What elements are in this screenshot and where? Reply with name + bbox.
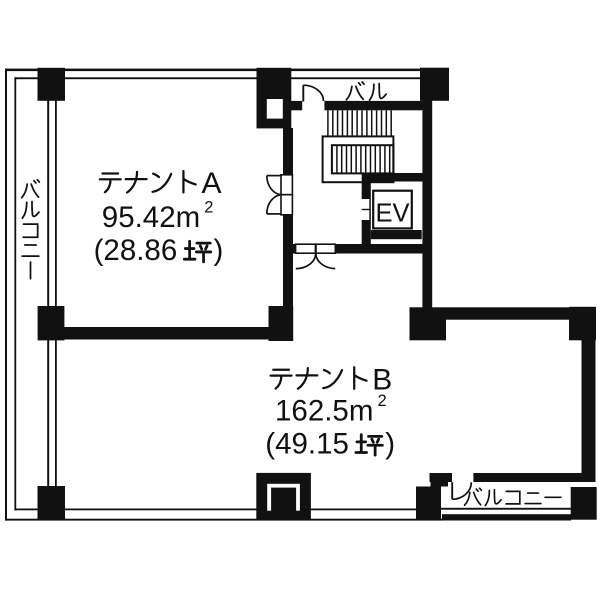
svg-text:162.5m: 162.5m xyxy=(275,394,373,427)
svg-text:(28.86: (28.86 xyxy=(94,234,178,267)
svg-text:EV: EV xyxy=(375,199,409,227)
svg-text:95.42m: 95.42m xyxy=(102,201,200,234)
svg-text:(49.15: (49.15 xyxy=(265,427,349,460)
svg-text:2: 2 xyxy=(378,392,387,410)
svg-text:): ) xyxy=(385,427,395,460)
svg-text:): ) xyxy=(214,234,224,267)
svg-text:A: A xyxy=(202,167,222,200)
svg-text:2: 2 xyxy=(204,199,213,217)
